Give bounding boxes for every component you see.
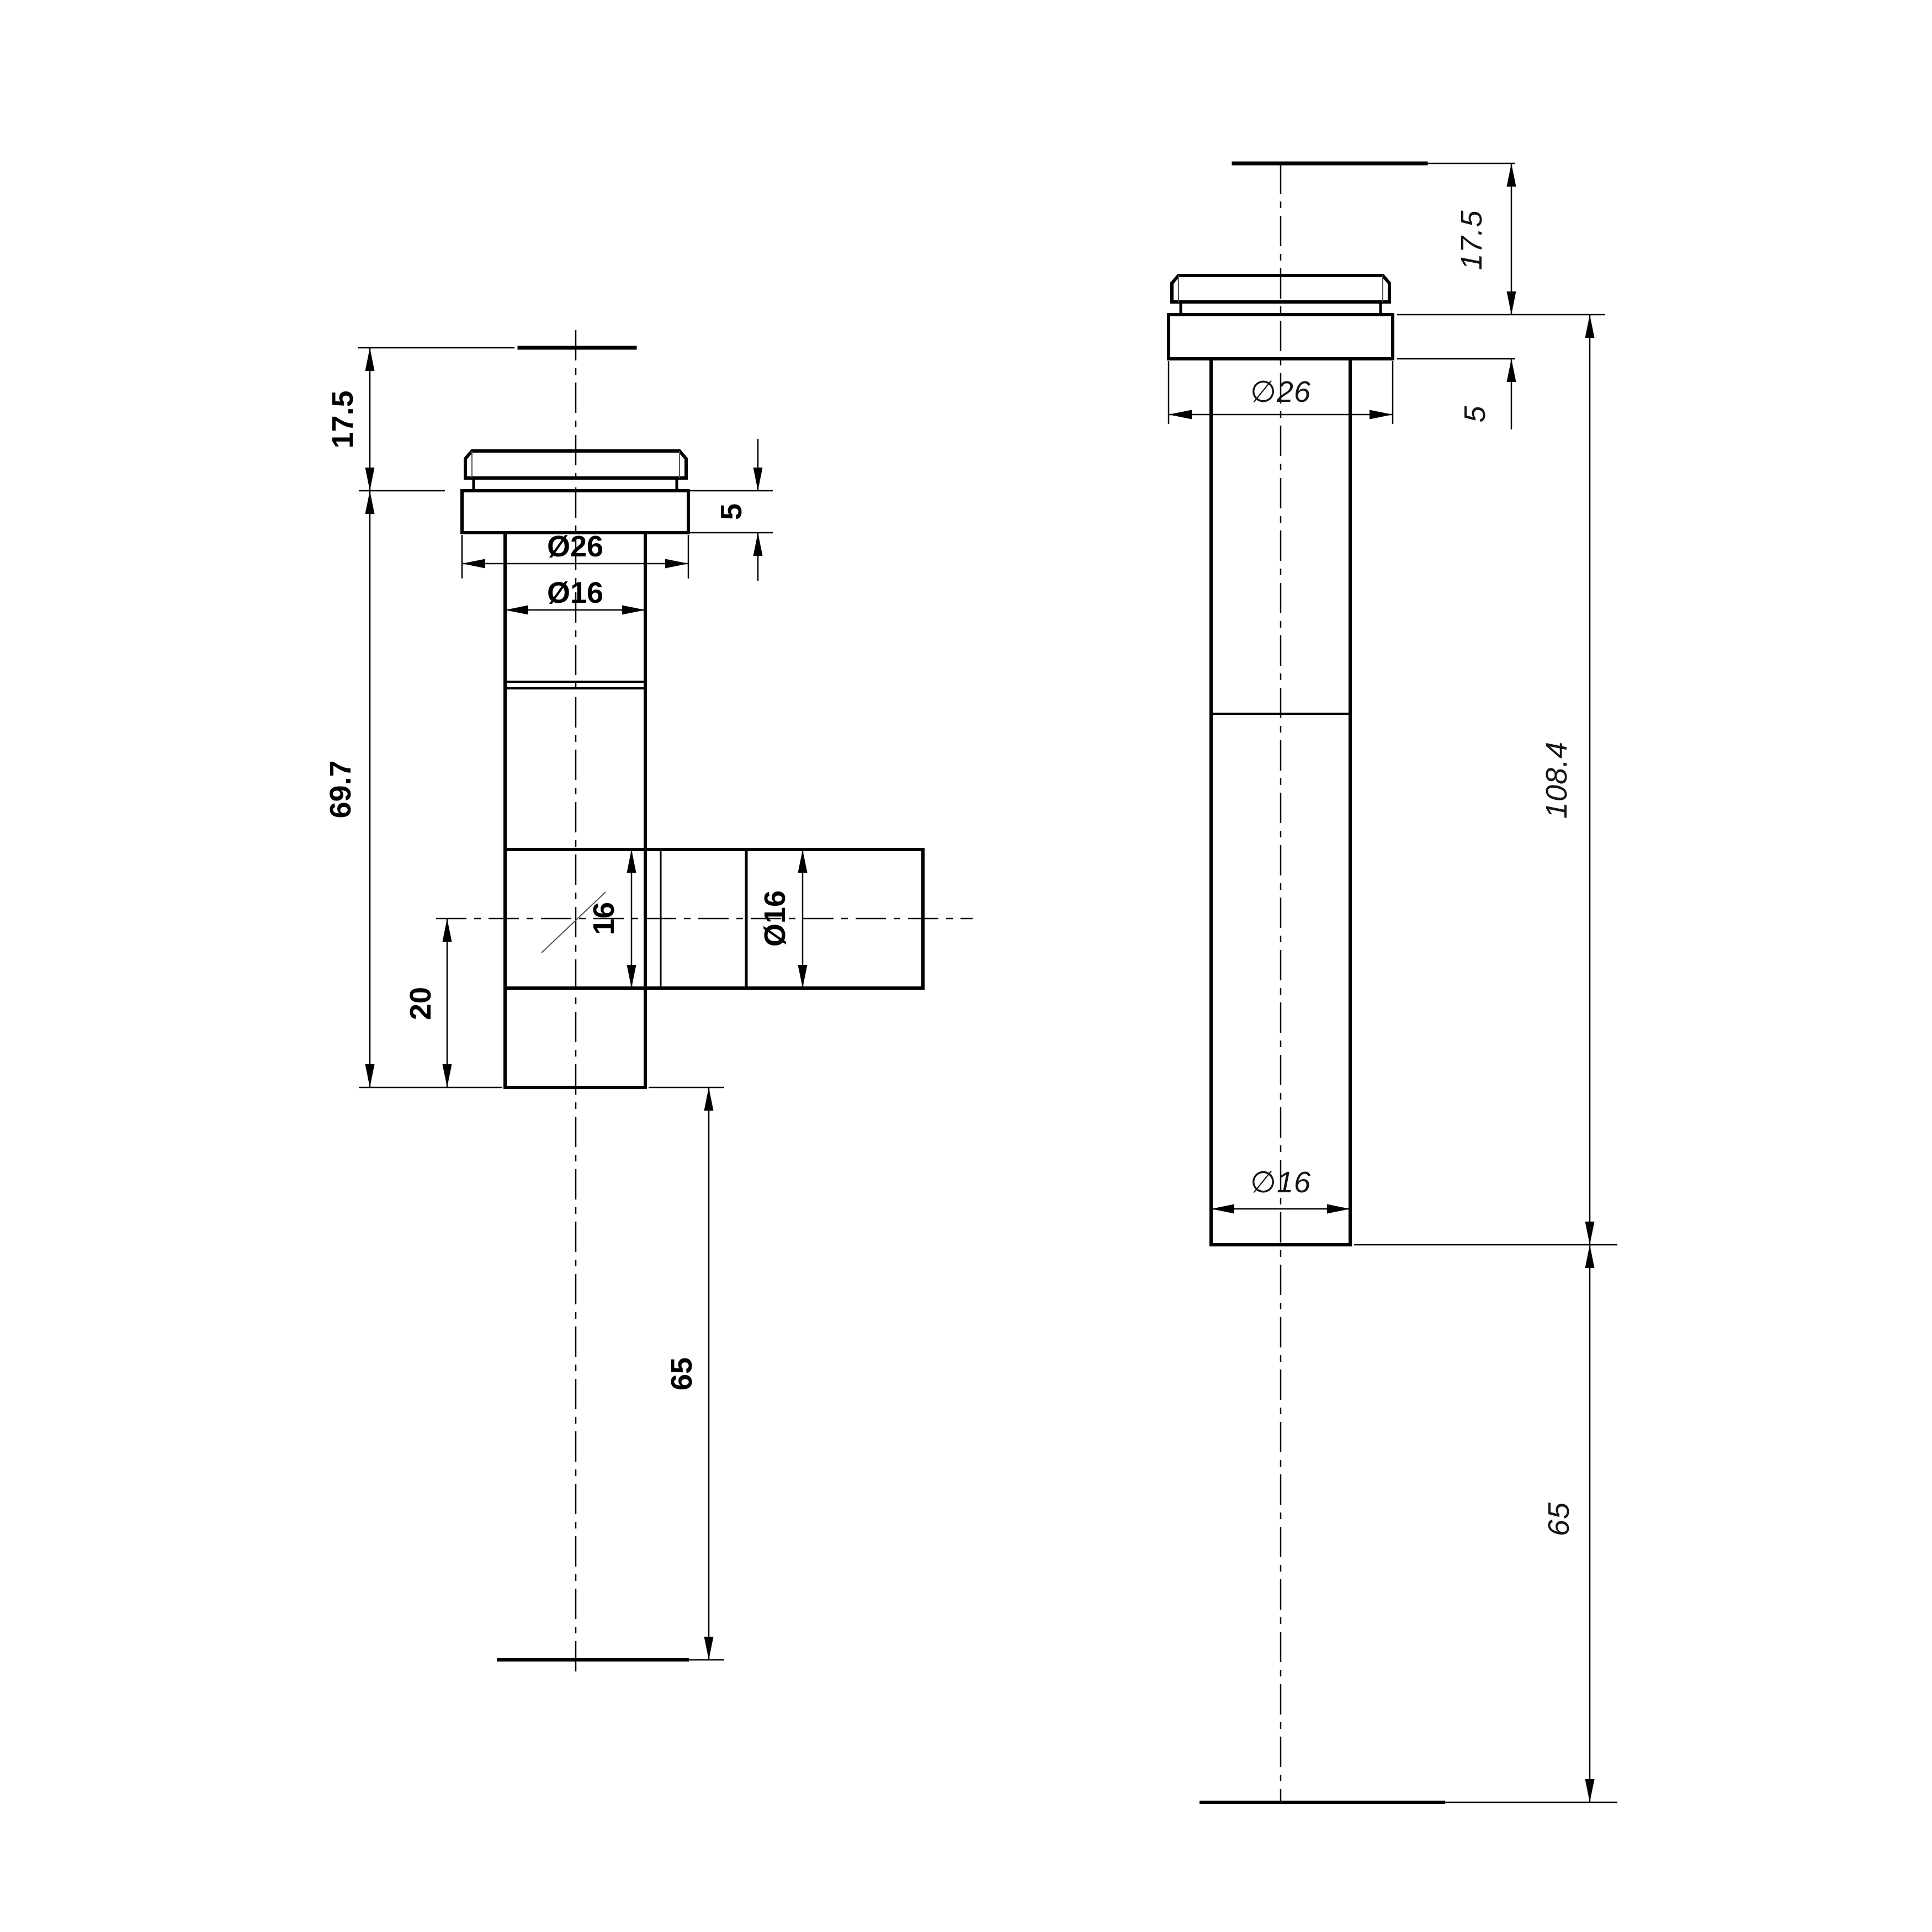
dim-label-shaft-diameter: Ø16 [547, 576, 603, 609]
right-view-dimension-labels: 17.5 5 ∅26 108.4 ∅16 65 [1250, 210, 1575, 1536]
dim-label-branch-axis-offset: 20 [404, 987, 437, 1020]
dim-label-tail-length-right: 65 [1542, 1502, 1575, 1536]
drawing-sheet: 17.5 69.7 20 65 Ø26 Ø16 16 Ø16 5 [0, 0, 1932, 1932]
dim-label-flange-diameter-right: ∅26 [1250, 375, 1311, 408]
right-view-arrowheads [1169, 163, 1595, 1802]
left-view-part-outline [462, 451, 923, 1087]
right-view-dimension-lines [1169, 163, 1590, 1802]
left-view: 17.5 69.7 20 65 Ø26 Ø16 16 Ø16 5 [324, 330, 973, 1678]
dim-label-cap-height: 17.5 [326, 390, 359, 448]
cad-drawing-canvas: 17.5 69.7 20 65 Ø26 Ø16 16 Ø16 5 [0, 0, 1932, 1932]
dim-label-flange-thickness: 5 [715, 503, 748, 520]
left-view-dimension-labels: 17.5 69.7 20 65 Ø26 Ø16 16 Ø16 5 [324, 390, 792, 1390]
dim-label-flange-thickness-right: 5 [1458, 405, 1492, 422]
right-view: 17.5 5 ∅26 108.4 ∅16 65 [1169, 163, 1617, 1804]
dim-label-cap-height-right: 17.5 [1455, 210, 1488, 270]
right-view-break-lines [1201, 163, 1617, 1802]
dim-label-body-length-right: 108.4 [1540, 741, 1573, 819]
dim-label-branch-diameter: Ø16 [758, 890, 792, 947]
dim-label-branch-bore: 16 [587, 902, 620, 935]
dim-label-tail-length: 65 [665, 1357, 698, 1390]
dim-label-shaft-diameter-right: ∅16 [1250, 1166, 1311, 1199]
dim-label-flange-diameter: Ø26 [547, 530, 603, 563]
dim-label-body-length: 69.7 [324, 760, 357, 818]
